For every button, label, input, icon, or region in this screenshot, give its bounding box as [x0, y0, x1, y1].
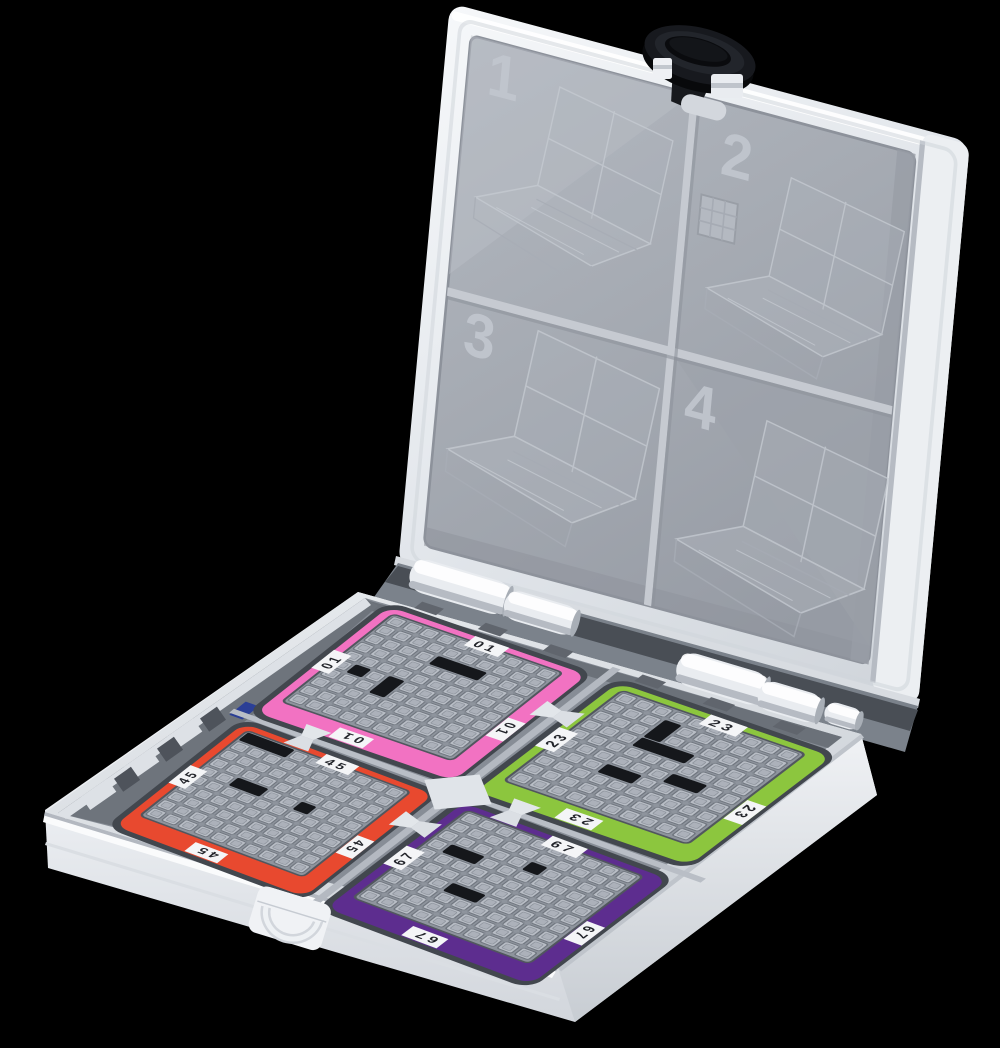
svg-text:2: 2 — [718, 118, 756, 195]
svg-text:3: 3 — [461, 298, 499, 375]
svg-text:4: 4 — [682, 368, 720, 445]
svg-text:1: 1 — [485, 38, 523, 115]
